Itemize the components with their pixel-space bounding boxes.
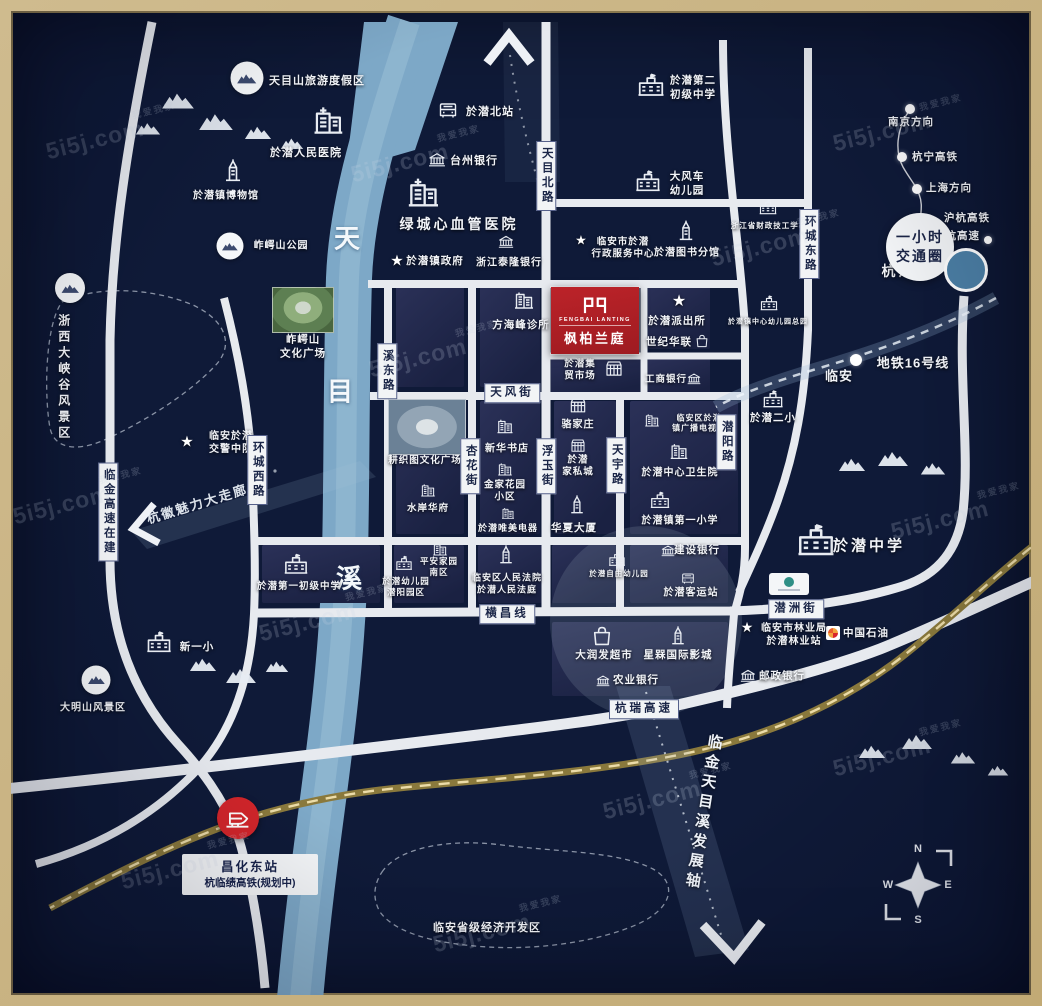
poi-label: 岞崿山公园 bbox=[254, 240, 309, 253]
mountain-icon bbox=[987, 764, 1009, 776]
poi-label: 沪杭高铁 bbox=[944, 212, 990, 226]
bank-icon bbox=[739, 667, 757, 685]
compass-n: N bbox=[914, 843, 922, 855]
bank-icon bbox=[497, 233, 515, 251]
building-icon bbox=[496, 460, 514, 478]
road-label: 杭瑞高速 bbox=[609, 699, 679, 719]
building-icon bbox=[668, 440, 690, 462]
poi-label: 於潜客运站 bbox=[664, 587, 719, 600]
poi-label: 工商银行 bbox=[645, 374, 687, 386]
building-icon bbox=[419, 481, 437, 499]
aerial-photo-gengzhitu bbox=[388, 399, 466, 455]
river-name-char: 天 bbox=[334, 219, 360, 256]
poi-label: 於潜集 贸市场 bbox=[564, 359, 596, 384]
one-hour-line2: 交通圈 bbox=[896, 247, 944, 266]
poi-label: 华夏大厦 bbox=[551, 522, 597, 536]
building-icon bbox=[512, 288, 536, 312]
compass bbox=[886, 851, 951, 919]
poi-label: 杭宁高铁 bbox=[912, 151, 958, 165]
hospital-icon bbox=[309, 101, 347, 139]
road-label: 天目北路 bbox=[536, 141, 556, 211]
transit-dot bbox=[912, 184, 922, 194]
school-icon bbox=[634, 167, 662, 195]
mall-icon bbox=[693, 332, 711, 350]
axis-band-bottom bbox=[616, 686, 749, 957]
bus-icon bbox=[436, 99, 460, 123]
mall-icon bbox=[589, 623, 616, 650]
school-icon bbox=[145, 628, 173, 656]
poi-label: 台州银行 bbox=[450, 154, 498, 168]
museum-icon bbox=[667, 625, 690, 648]
poi-label: 於潜第二 初级中学 bbox=[670, 74, 716, 101]
hospital-icon bbox=[403, 172, 443, 212]
school-icon bbox=[395, 554, 414, 573]
school-icon bbox=[636, 70, 666, 100]
compass-s: S bbox=[914, 914, 921, 926]
metro-line16-band bbox=[716, 298, 996, 407]
poi-label: 星槑国际影城 bbox=[644, 649, 713, 663]
museum-icon bbox=[674, 219, 699, 244]
road-label: 浮玉街 bbox=[536, 438, 556, 494]
gas-station-icon bbox=[826, 626, 840, 640]
transit-dot bbox=[984, 236, 992, 244]
developer-logo bbox=[769, 573, 809, 595]
poi-label: 於潜自由幼儿园 bbox=[589, 569, 649, 579]
poi-label: 於潜唯美电器 bbox=[478, 523, 538, 535]
poi-label: 地铁16号线 bbox=[877, 356, 949, 373]
poi-label: 於潜镇政府 bbox=[406, 255, 464, 269]
poi-label: 临安区人民法院 於潜人民法庭 bbox=[472, 572, 542, 595]
poi-label: 於潜镇中心幼儿园总园 bbox=[728, 317, 808, 326]
train-icon bbox=[223, 804, 253, 832]
museum-icon bbox=[219, 157, 247, 185]
poi-label: 农业银行 bbox=[613, 674, 659, 688]
poi-label: 骆家庄 bbox=[562, 419, 595, 432]
one-hour-line1: 一小时 bbox=[896, 228, 944, 247]
mountain-icon bbox=[189, 656, 217, 672]
star-icon: ★ bbox=[180, 435, 193, 450]
transit-dot bbox=[850, 354, 862, 366]
project-name-en: FENGBAI LANTING bbox=[559, 317, 631, 326]
bus-icon bbox=[680, 571, 697, 588]
mountain-icon bbox=[920, 461, 946, 476]
star-icon: ★ bbox=[672, 294, 686, 310]
poi-label: 金家花园 小区 bbox=[484, 480, 526, 505]
poi-label: 耕织图文化广场 bbox=[388, 455, 462, 467]
market-icon bbox=[568, 396, 588, 416]
poi-label: 於潜派出所 bbox=[648, 315, 706, 329]
star-icon: ★ bbox=[575, 234, 587, 247]
map-world: FENGBAI LANTING 枫柏兰庭 一小时 交通圈 昌化东站 杭临绩高铁(… bbox=[11, 11, 1031, 995]
mountain-icon bbox=[950, 750, 976, 765]
gate-logo-icon bbox=[578, 295, 612, 315]
road-label: 横昌线 bbox=[479, 604, 535, 624]
school-icon bbox=[649, 489, 671, 511]
road-label: 杏花街 bbox=[460, 438, 480, 494]
poi-label: 水岸华府 bbox=[407, 503, 449, 515]
road-label: 潜洲街 bbox=[768, 599, 824, 619]
map-canvas: FENGBAI LANTING 枫柏兰庭 一小时 交通圈 昌化东站 杭临绩高铁(… bbox=[11, 11, 1031, 995]
poi-label: 平安家园 南区 bbox=[420, 556, 458, 578]
poi-label: 於潜二小 bbox=[750, 412, 796, 426]
road-label: 天宇路 bbox=[606, 437, 626, 493]
building-icon bbox=[500, 505, 516, 521]
mountain-icon bbox=[838, 456, 866, 472]
star-icon: ★ bbox=[390, 254, 403, 269]
poi-label: 建设银行 bbox=[674, 544, 720, 558]
mountain-circle-icon bbox=[55, 273, 85, 303]
building-icon bbox=[643, 411, 661, 429]
poi-label: 於潜镇博物馆 bbox=[193, 190, 259, 203]
poi-label: 邮政银行 bbox=[759, 670, 805, 684]
map-screenshot: FENGBAI LANTING 枫柏兰庭 一小时 交通圈 昌化东站 杭临绩高铁(… bbox=[0, 0, 1042, 1006]
school-icon bbox=[762, 388, 785, 411]
mountain-icon bbox=[877, 449, 909, 467]
station-note: 杭临绩高铁(规划中) bbox=[184, 876, 316, 891]
museum-icon bbox=[495, 544, 518, 567]
compass-e: E bbox=[944, 879, 951, 891]
bank-icon bbox=[686, 371, 702, 387]
poi-label: 天目山旅游度假区 bbox=[269, 74, 365, 88]
mountain-icon bbox=[225, 666, 257, 684]
poi-label: 於潜幼儿园 潜阳园区 bbox=[382, 576, 430, 598]
poi-label: 方海峰诊所 bbox=[492, 319, 550, 333]
poi-label: 大明山风景区 bbox=[60, 702, 126, 715]
mountain-circle-icon bbox=[82, 666, 111, 695]
poi-label: 浙西大峡谷风景区 bbox=[55, 314, 71, 442]
mountain-icon bbox=[198, 111, 234, 131]
poi-label: 岞崿山 文化广场 bbox=[280, 333, 326, 360]
market-icon bbox=[569, 437, 587, 455]
poi-label: 新一小 bbox=[180, 641, 215, 655]
school-icon bbox=[758, 197, 778, 217]
poi-label: 於潜人民医院 bbox=[270, 146, 342, 160]
star-icon: ★ bbox=[741, 620, 754, 634]
mountain-icon bbox=[265, 659, 289, 672]
poi-label: 临安市於潜 行政服务中心 bbox=[591, 237, 654, 262]
school-icon bbox=[759, 293, 779, 313]
poi-label: 大润发超市 bbox=[575, 649, 633, 663]
road-label: 环城西路 bbox=[247, 435, 267, 505]
poi-label: 临安 bbox=[825, 369, 853, 386]
compass-w: W bbox=[883, 879, 893, 891]
poi-label: 於潜 家私城 bbox=[562, 455, 594, 480]
school-icon bbox=[608, 550, 627, 569]
aerial-photo-culture-plaza bbox=[272, 287, 334, 333]
market-icon bbox=[604, 359, 625, 380]
museum-icon bbox=[566, 494, 589, 517]
poi-label: 中国石油 bbox=[843, 627, 889, 641]
road-label: 天风街 bbox=[484, 383, 540, 403]
river-name-char: 目 bbox=[327, 372, 353, 409]
school-icon bbox=[283, 551, 310, 578]
scenic-area-outline bbox=[47, 291, 226, 447]
project-card-fengbai-lanting: FENGBAI LANTING 枫柏兰庭 bbox=[551, 287, 639, 354]
poi-label: 於潜北站 bbox=[466, 105, 514, 119]
poi-label: 於潜第一初级中学 bbox=[257, 581, 341, 593]
poi-label: 绿城心血管医院 bbox=[400, 215, 519, 233]
poi-label: 新华书店 bbox=[485, 443, 529, 456]
mountain-circle-icon bbox=[231, 62, 264, 95]
poi-label: 浙江泰隆银行 bbox=[476, 257, 542, 270]
school-icon bbox=[795, 519, 837, 561]
hangzhou-node-circle bbox=[944, 248, 988, 292]
building-icon bbox=[495, 416, 515, 436]
road-label: 潜阳路 bbox=[716, 414, 736, 470]
poi-label: 於潜中心卫生院 bbox=[642, 467, 719, 480]
mountain-circle-icon bbox=[217, 233, 244, 260]
poi-label: 於潜镇第一小学 bbox=[642, 515, 719, 528]
poi-label: 上海方向 bbox=[926, 182, 972, 196]
poi-label: 世纪华联 bbox=[646, 336, 692, 350]
project-name-cn: 枫柏兰庭 bbox=[564, 328, 626, 347]
transit-dot bbox=[897, 152, 907, 162]
poi-label: 临安市林业局 於潜林业站 bbox=[761, 622, 827, 648]
mountain-icon bbox=[244, 124, 272, 140]
poi-label: 大风车 幼儿园 bbox=[670, 170, 705, 197]
bank-icon bbox=[595, 673, 611, 689]
